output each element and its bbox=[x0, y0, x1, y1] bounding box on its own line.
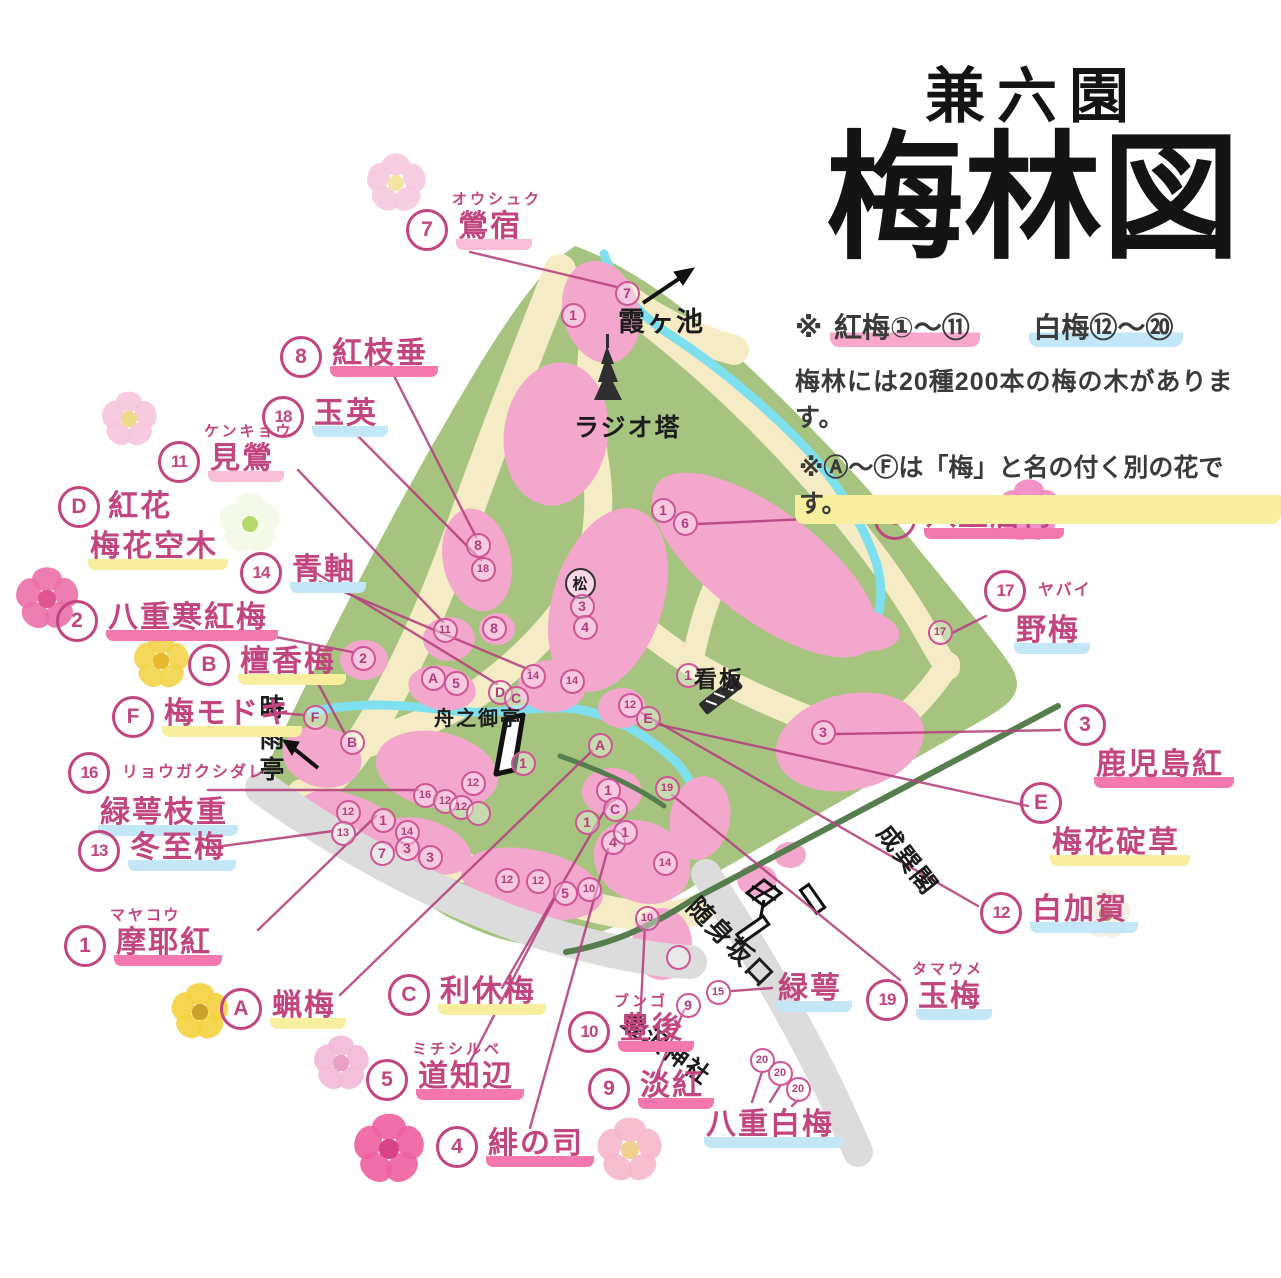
circled-badge-3: 3 bbox=[1064, 704, 1106, 746]
variety-name: 梅花空木 bbox=[88, 530, 228, 570]
variety-name: 紅枝垂 bbox=[330, 337, 438, 377]
tree-marker-14: 14 bbox=[521, 664, 546, 689]
variety-name: 鶯宿 bbox=[456, 210, 532, 250]
variety-name: 玉梅 bbox=[916, 980, 992, 1020]
variety-name: 紅花 bbox=[108, 490, 172, 524]
variety-name: 野梅 bbox=[1014, 614, 1090, 654]
variety-name: 道知辺 bbox=[416, 1060, 524, 1100]
tree-marker-12: 12 bbox=[461, 771, 486, 796]
variety-name: 摩耶紅 bbox=[114, 926, 222, 966]
place-name-kasumigaike: 霞ヶ池 bbox=[618, 300, 705, 339]
circled-badge-16: 16 bbox=[68, 752, 110, 794]
circled-badge-A: A bbox=[220, 988, 262, 1030]
circled-badge-9: 9 bbox=[588, 1068, 630, 1110]
circled-badge-8: 8 bbox=[280, 336, 322, 378]
tree-marker-5: 5 bbox=[553, 881, 578, 906]
tree-marker-15: 15 bbox=[706, 980, 731, 1005]
tree-marker-18: 18 bbox=[471, 557, 496, 582]
circled-badge-1: 1 bbox=[64, 925, 106, 967]
legend-ranges: ※ 紅梅①～⑪ 白梅⑫～⑳ bbox=[795, 306, 1281, 346]
leader-line bbox=[752, 1072, 762, 1102]
variety-label-kengyo: ケンキョウ11見鶯 bbox=[158, 424, 294, 483]
circled-badge-17: 17 bbox=[984, 570, 1026, 612]
variety-name: 玉英 bbox=[312, 397, 388, 437]
salmon-blossom-illustration bbox=[596, 1116, 664, 1184]
tree-marker-1: 1 bbox=[371, 808, 396, 833]
circled-badge-12: 12 bbox=[980, 892, 1022, 934]
variety-label-ryokugaku-shidare: 16リョウガクシダレ緑萼枝重 bbox=[68, 752, 266, 836]
tree-marker-C: C bbox=[603, 797, 628, 822]
circled-badge-C: C bbox=[388, 974, 430, 1016]
tree-marker-1: 1 bbox=[561, 303, 586, 328]
variety-label-michishirube: ミチシルベ5道知辺 bbox=[366, 1042, 524, 1101]
place-name-fune-no-otei: 舟之御亭 bbox=[434, 702, 522, 731]
tree-marker-12: 12 bbox=[495, 868, 520, 893]
tree-marker-3: 3 bbox=[811, 720, 836, 745]
variety-label-yae-kanko-bai: 2八重寒紅梅 bbox=[56, 600, 278, 642]
variety-label-shira-kaga: 12白加賀 bbox=[980, 892, 1138, 934]
furigana: ヤバイ bbox=[1038, 582, 1092, 600]
pale-pink-blossom-illustration bbox=[312, 1034, 370, 1092]
variety-name: 豊後 bbox=[618, 1012, 694, 1052]
tree-marker-B: B bbox=[340, 730, 365, 755]
variety-label-oushuku: オウシュク7鶯宿 bbox=[406, 192, 542, 251]
tree-marker-6: 6 bbox=[673, 511, 698, 536]
tree-marker-1: 1 bbox=[511, 751, 536, 776]
furigana: ミチシルベ bbox=[412, 1042, 524, 1059]
tree-marker-A: A bbox=[588, 733, 613, 758]
tree-marker-1: 1 bbox=[651, 498, 676, 523]
circled-badge-13: 13 bbox=[78, 830, 120, 872]
variety-label-rikyu-bai: C利休梅 bbox=[388, 974, 546, 1016]
circled-badge-E: E bbox=[1020, 782, 1062, 824]
tree-marker-11: 11 bbox=[433, 618, 458, 643]
tree-marker-7: 7 bbox=[370, 841, 395, 866]
variety-name: 白加賀 bbox=[1030, 893, 1138, 933]
variety-label-danko-bai: B檀香梅 bbox=[188, 644, 346, 686]
tree-marker-E: E bbox=[636, 706, 661, 731]
leader-line bbox=[770, 1086, 780, 1102]
furigana: オウシュク bbox=[452, 192, 542, 209]
tree-marker-1: 1 bbox=[613, 820, 638, 845]
variety-label-aojiku: 14青軸 bbox=[240, 552, 366, 594]
map-title: 兼六園 梅林図 bbox=[813, 48, 1253, 270]
variety-name: 緋の司 bbox=[486, 1127, 594, 1167]
place-name-radio-tower: ラジオ塔 bbox=[574, 408, 682, 444]
circled-badge-4: 4 bbox=[436, 1126, 478, 1168]
legend: ※ 紅梅①～⑪ 白梅⑫～⑳ 梅林には20種200本の梅の木があります。 ※Ⓐ～Ⓕ… bbox=[795, 306, 1281, 524]
variety-label-kagoshima-ko: 3鹿児島紅 bbox=[1064, 704, 1234, 788]
variety-label-beni-shidare: 8紅枝垂 bbox=[280, 336, 438, 378]
variety-label-toji-bai: 13冬至梅 bbox=[78, 830, 236, 872]
title-bairin-zu: 梅林図 bbox=[813, 129, 1253, 270]
legend-tree-count: 梅林には20種200本の梅の木があります。 bbox=[795, 362, 1281, 434]
furigana: タマウメ bbox=[912, 962, 992, 979]
variety-label-tama-ume: タマウメ19玉梅 bbox=[866, 962, 992, 1021]
variety-name: 蝋梅 bbox=[270, 989, 346, 1029]
white-plum-label: 白梅 bbox=[1033, 312, 1089, 343]
variety-name: 八重白梅 bbox=[704, 1108, 844, 1148]
legend-white-plum: 白梅⑫～⑳ bbox=[1029, 312, 1183, 347]
circled-badge-7: 7 bbox=[406, 209, 448, 251]
tree-marker-2: 2 bbox=[351, 646, 376, 671]
tree-marker-12: 12 bbox=[526, 869, 551, 894]
map-canvas: 718181182A5DC1414松341617112EFB3A11216121… bbox=[0, 0, 1281, 1278]
tree-marker-8: 8 bbox=[466, 533, 491, 558]
circled-badge-F: F bbox=[112, 696, 154, 738]
furigana: マヤコウ bbox=[110, 908, 222, 925]
red-plum-range: ①～⑪ bbox=[890, 312, 970, 343]
tree-marker-10: 10 bbox=[577, 877, 602, 902]
furigana: ケンキョウ bbox=[204, 424, 294, 441]
tree-marker-3: 3 bbox=[395, 836, 420, 861]
variety-name: 青軸 bbox=[290, 553, 366, 593]
tree-marker-10: 10 bbox=[635, 906, 660, 931]
variety-name: 梅花碇草 bbox=[1050, 826, 1190, 866]
deep-pink-blossom-illustration bbox=[352, 1112, 426, 1186]
circled-badge-19: 19 bbox=[866, 979, 908, 1021]
variety-label-hi-no-tsukasa: 4緋の司 bbox=[436, 1126, 594, 1168]
variety-label-mayako: マヤコウ1摩耶紅 bbox=[64, 908, 222, 967]
tree-marker-4: 4 bbox=[573, 615, 598, 640]
tree-marker-14: 14 bbox=[560, 669, 585, 694]
furigana: ブンゴ bbox=[614, 994, 694, 1011]
circled-badge-11: 11 bbox=[158, 441, 200, 483]
place-name-kanban: 看板 bbox=[694, 660, 744, 694]
circled-badge-14: 14 bbox=[240, 552, 282, 594]
variety-name: 利休梅 bbox=[438, 975, 546, 1015]
variety-name: 冬至梅 bbox=[128, 831, 236, 871]
variety-label-benibana-baikautsugi: D紅花梅花空木 bbox=[58, 486, 228, 570]
circled-badge-5: 5 bbox=[366, 1059, 408, 1101]
tree-marker-1: 1 bbox=[575, 810, 600, 835]
tree-marker-13: 13 bbox=[331, 821, 356, 846]
circled-badge-2: 2 bbox=[56, 600, 98, 642]
variety-label-robai: A蝋梅 bbox=[220, 988, 346, 1030]
variety-label-yabai: 17ヤバイ野梅 bbox=[984, 570, 1092, 654]
tree-marker-F: F bbox=[303, 705, 328, 730]
legend-letter-note: ※Ⓐ～Ⓕは「梅」と名の付く別の花です。 bbox=[795, 448, 1281, 524]
circled-badge-D: D bbox=[58, 486, 100, 528]
variety-label-tanko: 9淡紅 bbox=[588, 1068, 714, 1110]
variety-name: 見鶯 bbox=[208, 442, 284, 482]
tree-marker-14: 14 bbox=[653, 851, 678, 876]
tree-marker-19: 19 bbox=[655, 776, 680, 801]
variety-name: 鹿児島紅 bbox=[1094, 748, 1234, 788]
tree-marker-empty bbox=[466, 801, 491, 826]
red-plum-label: 紅梅 bbox=[834, 312, 890, 343]
tree-marker-3: 3 bbox=[418, 845, 443, 870]
circled-badge-10: 10 bbox=[568, 1011, 610, 1053]
tree-marker-8: 8 bbox=[482, 616, 507, 641]
legend-red-plum: 紅梅①～⑪ bbox=[830, 312, 980, 347]
tree-marker-17: 17 bbox=[928, 620, 953, 645]
tree-marker-empty bbox=[666, 945, 691, 970]
tree-marker-5: 5 bbox=[444, 671, 469, 696]
variety-name: 緑萼 bbox=[776, 972, 852, 1012]
variety-name: 檀香梅 bbox=[238, 645, 346, 685]
tree-marker-A: A bbox=[421, 666, 446, 691]
variety-label-ryokugaku: 緑萼 bbox=[776, 972, 852, 1012]
pink-blossom-illustration bbox=[100, 390, 158, 448]
furigana: リョウガクシダレ bbox=[122, 764, 266, 782]
variety-label-yae-hakubai: 八重白梅 bbox=[704, 1108, 844, 1148]
variety-name: 八重寒紅梅 bbox=[106, 601, 278, 641]
variety-name: 淡紅 bbox=[638, 1069, 714, 1109]
white-plum-range: ⑫～⑳ bbox=[1089, 312, 1173, 343]
variety-label-baika-ikariso: E梅花碇草 bbox=[1020, 782, 1190, 866]
tree-marker-20: 20 bbox=[786, 1077, 811, 1102]
circled-badge-B: B bbox=[188, 644, 230, 686]
variety-label-ume-modoki: F梅モドキ bbox=[112, 696, 302, 738]
variety-label-bungo: ブンゴ10豊後 bbox=[568, 994, 694, 1053]
variety-name: 梅モドキ bbox=[162, 697, 302, 737]
legend-note-mark: ※ bbox=[795, 312, 822, 343]
